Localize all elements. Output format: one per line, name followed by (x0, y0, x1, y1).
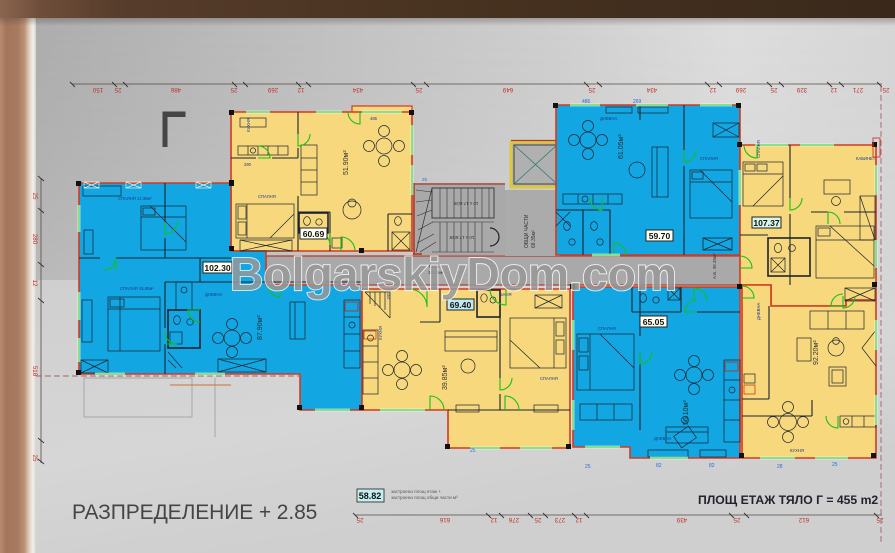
svg-text:82: 82 (656, 463, 662, 469)
svg-text:ПЛОЩ ЕТАЖ ТЯЛО Г = 455 m2: ПЛОЩ ЕТАЖ ТЯЛО Г = 455 m2 (698, 493, 878, 507)
svg-text:486: 486 (582, 99, 591, 105)
svg-text:150: 150 (92, 86, 103, 93)
svg-text:ОБЩИ ЧАСТИ: ОБЩИ ЧАСТИ (524, 214, 530, 248)
svg-text:12: 12 (709, 86, 716, 93)
svg-text:102.30: 102.30 (204, 263, 231, 273)
svg-text:68.35м²: 68.35м² (531, 230, 537, 248)
svg-text:КУХНЯ: КУХНЯ (378, 326, 383, 340)
svg-text:271: 271 (852, 86, 863, 93)
svg-text:10 x 17.6/28: 10 x 17.6/28 (449, 235, 474, 240)
svg-text:25: 25 (832, 462, 838, 468)
svg-text:застроена площ етаж +: застроена площ етаж + (391, 489, 441, 494)
svg-text:25: 25 (585, 464, 591, 470)
svg-text:269: 269 (633, 99, 642, 105)
svg-text:649: 649 (502, 86, 513, 93)
svg-text:25: 25 (230, 86, 237, 93)
svg-text:12: 12 (575, 516, 582, 523)
svg-text:КУХНЯ: КУХНЯ (790, 448, 804, 453)
svg-text:616: 616 (439, 516, 450, 523)
svg-text:ДНЕВНА: ДНЕВНА (756, 303, 761, 320)
svg-text:25: 25 (31, 455, 38, 462)
svg-text:10 x 17.6/28: 10 x 17.6/28 (453, 201, 478, 206)
svg-text:СПАЛНЯ: СПАЛНЯ (540, 376, 558, 381)
svg-text:39.85м²: 39.85м² (442, 365, 449, 390)
svg-text:BolgarskiyDom.com: BolgarskiyDom.com (230, 248, 677, 300)
svg-text:РАЗПРЕДЕЛЕНИЕ + 2.85: РАЗПРЕДЕЛЕНИЕ + 2.85 (72, 501, 317, 524)
svg-text:82: 82 (709, 463, 715, 469)
svg-text:269: 269 (735, 86, 746, 93)
svg-text:12: 12 (297, 86, 304, 93)
svg-text:273: 273 (554, 516, 565, 523)
svg-text:25: 25 (876, 516, 883, 523)
svg-text:КУХНЯ: КУХНЯ (246, 118, 251, 132)
svg-text:СПАЛНЯ: СПАЛНЯ (756, 140, 761, 158)
svg-text:СПАЛНЯ: СПАЛНЯ (598, 326, 616, 331)
svg-text:56.10м²: 56.10м² (683, 400, 690, 425)
svg-text:СПАЛНЯ 14.30м²: СПАЛНЯ 14.30м² (118, 196, 152, 201)
svg-text:СПАЛНЯ: СПАЛНЯ (258, 194, 276, 199)
svg-text:58.82: 58.82 (359, 491, 382, 501)
svg-text:25: 25 (31, 193, 38, 200)
svg-text:25: 25 (733, 516, 740, 523)
svg-text:КАБИНЕТ: КАБИНЕТ (856, 156, 876, 161)
svg-text:51.90м²: 51.90м² (343, 150, 350, 175)
svg-text:12: 12 (31, 280, 38, 287)
svg-text:60.69: 60.69 (303, 229, 325, 239)
svg-text:107.37: 107.37 (753, 218, 780, 228)
svg-text:434: 434 (352, 86, 363, 93)
svg-text:застроена площ общи части м²: застроена площ общи части м² (391, 495, 458, 500)
svg-text:434: 434 (646, 86, 657, 93)
svg-text:СПАЛНЯ: СПАЛНЯ (700, 156, 718, 161)
svg-text:59.70: 59.70 (649, 231, 671, 241)
svg-text:А.Б. 36.35м²: А.Б. 36.35м² (712, 253, 717, 279)
svg-text:ДНЕВНА: ДНЕВНА (600, 116, 617, 121)
svg-text:290: 290 (244, 162, 252, 167)
svg-text:25: 25 (356, 516, 363, 523)
svg-text:28: 28 (777, 464, 783, 470)
svg-text:87.90м²: 87.90м² (257, 315, 264, 340)
svg-text:12: 12 (490, 516, 497, 523)
svg-text:25: 25 (534, 516, 541, 523)
svg-text:439: 439 (676, 516, 687, 523)
svg-text:ДНЕВНА: ДНЕВНА (654, 436, 671, 441)
svg-text:518: 518 (31, 366, 38, 377)
svg-text:25: 25 (415, 86, 422, 93)
svg-text:СПАЛНЯ 15.80м²: СПАЛНЯ 15.80м² (120, 286, 154, 291)
svg-text:329: 329 (796, 86, 807, 93)
svg-text:12: 12 (830, 86, 837, 93)
svg-text:280: 280 (31, 234, 38, 245)
svg-text:25: 25 (588, 86, 595, 93)
svg-text:485: 485 (370, 116, 378, 121)
svg-text:65.05: 65.05 (643, 317, 665, 327)
svg-text:ДНЕВНА: ДНЕВНА (205, 292, 222, 297)
svg-text:486: 486 (170, 86, 181, 93)
svg-text:25: 25 (882, 86, 889, 93)
svg-text:69.40: 69.40 (450, 300, 472, 310)
svg-text:25: 25 (422, 177, 428, 182)
svg-text:61.05м²: 61.05м² (618, 134, 625, 159)
svg-text:25: 25 (770, 86, 777, 93)
svg-text:276: 276 (508, 516, 519, 523)
svg-text:25: 25 (114, 86, 121, 93)
svg-text:25: 25 (470, 448, 476, 454)
svg-text:269: 269 (267, 86, 278, 93)
svg-text:612: 612 (798, 516, 809, 523)
svg-text:92.20м²: 92.20м² (813, 340, 820, 365)
